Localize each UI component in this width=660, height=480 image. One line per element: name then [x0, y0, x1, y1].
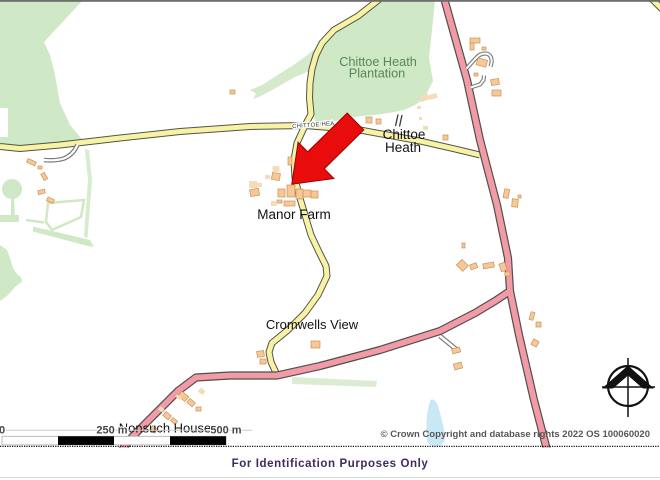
svg-text:Cromwells View: Cromwells View	[266, 317, 359, 332]
svg-text:500 m: 500 m	[210, 425, 241, 437]
svg-text:0: 0	[0, 425, 5, 437]
svg-text:For Identification Purposes On: For Identification Purposes Only	[232, 458, 429, 470]
svg-text:Plantation: Plantation	[349, 67, 405, 81]
svg-text:Nonsuch House: Nonsuch House	[119, 421, 212, 436]
svg-text:Heath: Heath	[385, 140, 421, 155]
svg-text:Manor Farm: Manor Farm	[257, 207, 331, 222]
svg-text:© Crown Copyright and database: © Crown Copyright and database rights 20…	[381, 429, 650, 440]
svg-text:250 m: 250 m	[96, 425, 127, 437]
